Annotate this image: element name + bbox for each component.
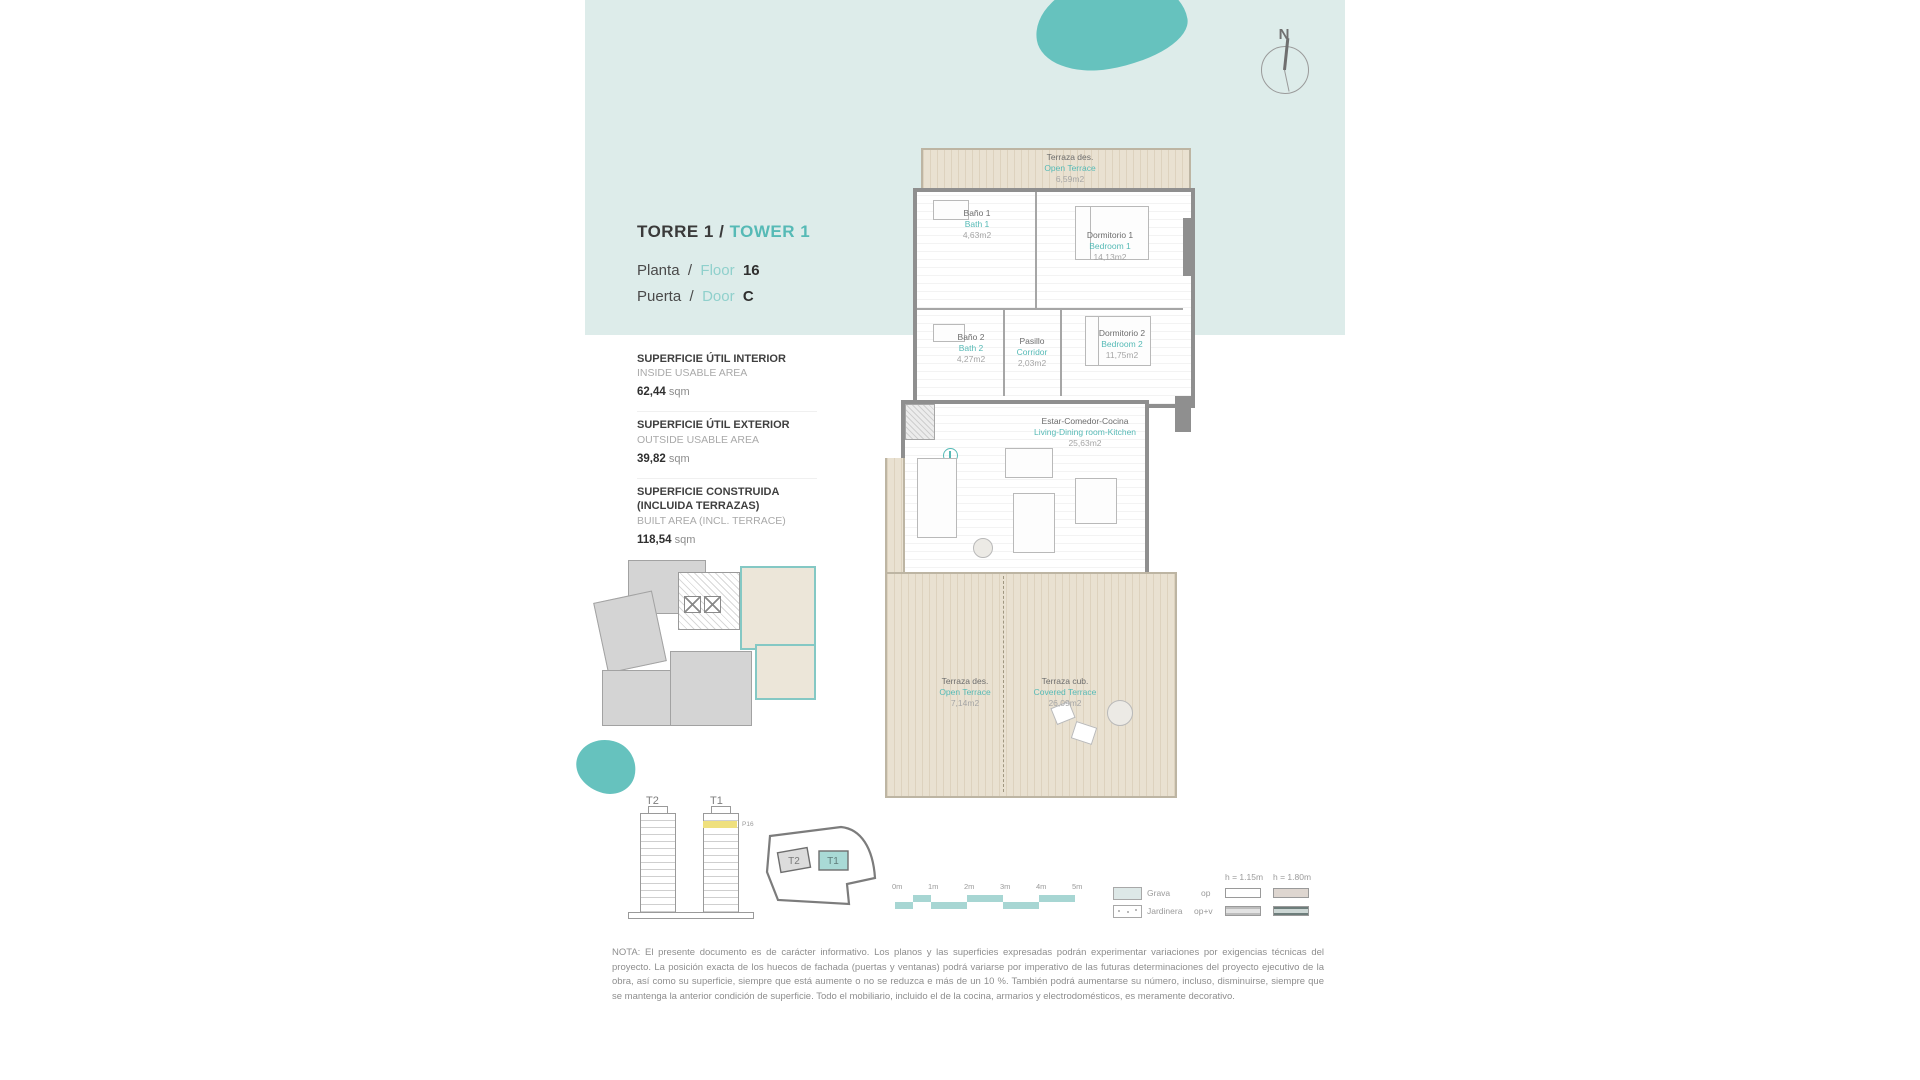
key-plan — [600, 558, 816, 726]
terrace-top-area: 6,59m2 — [1044, 174, 1095, 185]
sofa — [1013, 493, 1055, 553]
wall-partition — [917, 308, 1183, 310]
area-exterior-unit: sqm — [669, 453, 690, 465]
bedroom1-en: Bedroom 1 — [1087, 241, 1133, 252]
area-exterior-value: 39,82 sqm — [637, 453, 817, 465]
terrace-covered-en: Covered Terrace — [1034, 687, 1097, 698]
side-table — [973, 538, 993, 558]
scale-segment — [967, 895, 1003, 902]
bath1-en: Bath 1 — [963, 219, 991, 230]
terrace-side-strip — [885, 458, 905, 572]
tower-t2 — [640, 813, 676, 913]
title-torre: TORRE 1 / — [637, 222, 724, 241]
terrace-open-label: Terraza des. Open Terrace 7,14m2 — [939, 676, 990, 709]
bath1-es: Baño 1 — [963, 208, 991, 219]
area-interior: SUPERFICIE ÚTIL INTERIOR INSIDE USABLE A… — [637, 352, 817, 398]
site-plan: T2 T1 — [763, 820, 887, 912]
floor-label: Floor — [700, 262, 734, 279]
terrace-divider — [1003, 576, 1004, 792]
terrace-open-en: Open Terrace — [939, 687, 990, 698]
scale-segment — [931, 902, 967, 909]
area-built-en: BUILT AREA (INCL. TERRACE) — [637, 514, 817, 528]
compass-icon: N — [1252, 26, 1316, 104]
legend-height-1: h = 1.15m — [1225, 872, 1263, 882]
bath2-es: Baño 2 — [957, 332, 985, 343]
kitchen-island — [917, 458, 957, 538]
scale-tick: 5m — [1072, 882, 1082, 891]
area-built-es: SUPERFICIE CONSTRUIDA (INCLUIDA TERRAZAS… — [637, 485, 817, 514]
scale-segment — [913, 895, 931, 902]
jardinera-swatch — [1113, 905, 1142, 918]
terrace-covered-area: 26,09m2 — [1034, 698, 1097, 709]
area-interior-number: 62,44 — [637, 386, 666, 398]
service-shaft — [905, 404, 935, 440]
keyplan-unit-d — [670, 651, 752, 726]
legend: h = 1.15m h = 1.80m Grava op Jardinera o… — [1105, 872, 1320, 924]
area-interior-es: SUPERFICIE ÚTIL INTERIOR — [637, 352, 817, 366]
bedroom2-es: Dormitorio 2 — [1099, 328, 1145, 339]
scale-bar: 0m 1m 2m 3m 4m 5m — [895, 882, 1115, 916]
outdoor-table — [1107, 700, 1133, 726]
dining-table — [1005, 448, 1053, 478]
floor-marker: P16 — [742, 821, 754, 828]
living-es: Estar-Comedor-Cocina — [1034, 416, 1136, 427]
bedroom1-area: 14,13m2 — [1087, 252, 1133, 263]
door-label: Door — [702, 288, 735, 305]
legend-height-2: h = 1.80m — [1273, 872, 1311, 882]
elevator-icon — [684, 596, 701, 613]
scale-tick: 2m — [964, 882, 974, 891]
door-value: C — [743, 288, 754, 305]
living-area: 25,63m2 — [1034, 438, 1136, 449]
bed-2-headboard — [1085, 316, 1099, 366]
area-built-number: 118,54 — [637, 534, 672, 546]
puerta-sep: / — [690, 288, 694, 305]
bath2-label: Baño 2 Bath 2 4,27m2 — [957, 332, 985, 365]
area-interior-value: 62,44 sqm — [637, 386, 817, 398]
wall-chunk — [1183, 218, 1191, 276]
bath1-area: 4,63m2 — [963, 230, 991, 241]
page-title: TORRE 1 / TOWER 1 — [637, 222, 810, 242]
keyplan-highlight-unit-lower — [755, 644, 816, 700]
wall-partition — [1035, 192, 1037, 308]
jardinera-label: Jardinera — [1147, 906, 1182, 916]
terrace-covered-es: Terraza cub. — [1034, 676, 1097, 687]
terrace-covered-label: Terraza cub. Covered Terrace 26,09m2 — [1034, 676, 1097, 709]
bath1-label: Baño 1 Bath 1 4,63m2 — [963, 208, 991, 241]
bath2-area: 4,27m2 — [957, 354, 985, 365]
area-built-unit: sqm — [675, 534, 696, 546]
floor-plan: Terraza des. Open Terrace 6,59m2 Baño 1 … — [885, 148, 1207, 798]
area-exterior-es: SUPERFICIE ÚTIL EXTERIOR — [637, 418, 817, 432]
terrace-top-label: Terraza des. Open Terrace 6,59m2 — [1044, 152, 1095, 185]
corridor-area: 2,03m2 — [1017, 358, 1048, 369]
scale-segment — [1003, 902, 1039, 909]
bedroom1-es: Dormitorio 1 — [1087, 230, 1133, 241]
bedroom2-en: Bedroom 2 — [1099, 339, 1145, 350]
scale-tick: 4m — [1036, 882, 1046, 891]
living-label: Estar-Comedor-Cocina Living-Dining room-… — [1034, 416, 1136, 449]
corridor-es: Pasillo — [1017, 336, 1048, 347]
tower-base — [628, 912, 754, 919]
area-interior-en: INSIDE USABLE AREA — [637, 366, 817, 380]
floor-value: 16 — [743, 262, 760, 279]
legend-opv-label: op+v — [1194, 906, 1213, 916]
grava-label: Grava — [1147, 888, 1170, 898]
area-exterior: SUPERFICIE ÚTIL EXTERIOR OUTSIDE USABLE … — [637, 411, 817, 464]
tower-t1 — [703, 813, 739, 913]
corridor-label: Pasillo Corridor 2,03m2 — [1017, 336, 1048, 369]
bedroom1-label: Dormitorio 1 Bedroom 1 14,13m2 — [1087, 230, 1133, 263]
door-line: Puerta / Door C — [637, 288, 754, 305]
scale-segment — [1039, 895, 1075, 902]
site-plan-outline: T2 T1 — [763, 820, 887, 912]
bedroom-block — [913, 188, 1195, 408]
legend-opv-bar-2 — [1273, 906, 1309, 916]
wall-chunk — [1175, 396, 1191, 432]
scale-segment — [895, 902, 913, 909]
terrace-top-en: Open Terrace — [1044, 163, 1095, 174]
planta-label: Planta — [637, 262, 680, 279]
area-built: SUPERFICIE CONSTRUIDA (INCLUIDA TERRAZAS… — [637, 478, 817, 546]
tv-cabinet — [1075, 478, 1117, 524]
site-t2-label: T2 — [788, 856, 800, 867]
elevator-icon — [704, 596, 721, 613]
scale-tick: 0m — [892, 882, 902, 891]
bedroom2-area: 11,75m2 — [1099, 350, 1145, 361]
areas-block: SUPERFICIE ÚTIL INTERIOR INSIDE USABLE A… — [637, 352, 817, 559]
area-built-value: 118,54 sqm — [637, 534, 817, 546]
scale-tick: 3m — [1000, 882, 1010, 891]
bedroom2-label: Dormitorio 2 Bedroom 2 11,75m2 — [1099, 328, 1145, 361]
wall-partition — [1060, 310, 1062, 396]
disclaimer-note: NOTA: El presente documento es de caráct… — [612, 946, 1324, 1005]
puerta-label: Puerta — [637, 288, 681, 305]
terrace-open-es: Terraza des. — [939, 676, 990, 687]
tower-t1-floor-highlight — [703, 821, 737, 828]
living-en: Living-Dining room-Kitchen — [1034, 427, 1136, 438]
wall-partition — [1003, 310, 1005, 396]
terrace-top-es: Terraza des. — [1044, 152, 1095, 163]
plan-sheet: N TORRE 1 / TOWER 1 Planta / Floor 16 Pu… — [0, 0, 1920, 1080]
legend-op-label: op — [1201, 888, 1210, 898]
area-interior-unit: sqm — [669, 386, 690, 398]
area-exterior-number: 39,82 — [637, 453, 666, 465]
bath2-en: Bath 2 — [957, 343, 985, 354]
grava-swatch — [1113, 887, 1142, 900]
title-tower: TOWER 1 — [730, 222, 811, 241]
area-exterior-en: OUTSIDE USABLE AREA — [637, 433, 817, 447]
legend-opv-bar-1 — [1225, 906, 1261, 916]
corridor-en: Corridor — [1017, 347, 1048, 358]
decorative-blob-bottom — [570, 734, 641, 800]
site-t1-label: T1 — [827, 856, 839, 867]
scale-tick: 1m — [928, 882, 938, 891]
terrace-bottom — [885, 572, 1177, 798]
keyplan-highlight-unit — [740, 566, 816, 650]
floor-line: Planta / Floor 16 — [637, 262, 760, 279]
planta-sep: / — [688, 262, 692, 279]
terrace-open-area: 7,14m2 — [939, 698, 990, 709]
legend-op-bar-1 — [1225, 888, 1261, 898]
legend-op-bar-2 — [1273, 888, 1309, 898]
